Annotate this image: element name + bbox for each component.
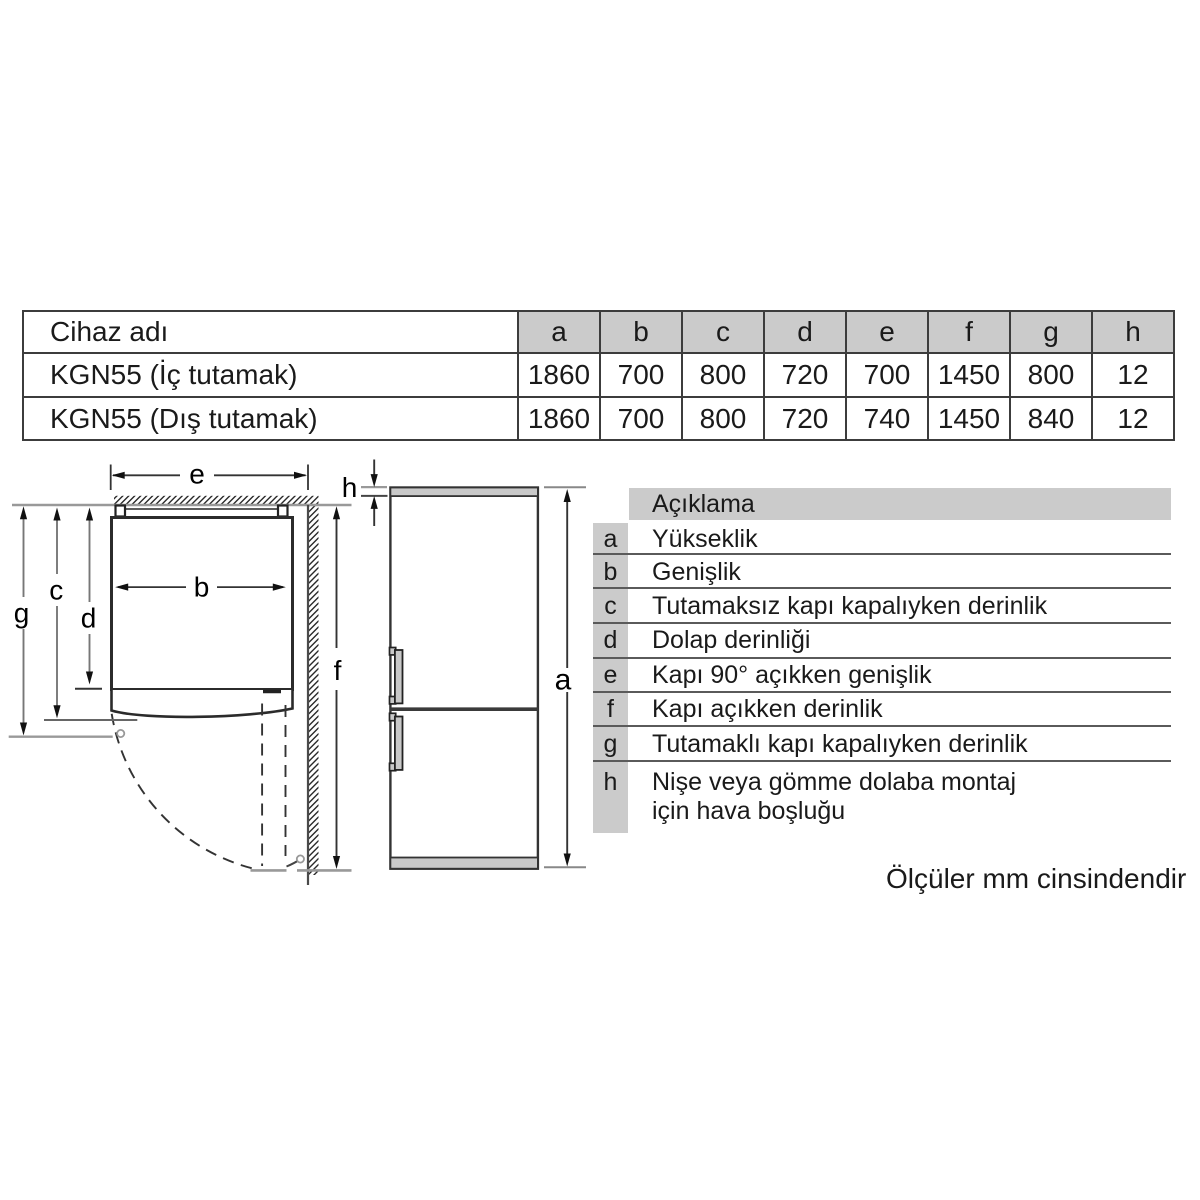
svg-text:d: d <box>81 603 97 634</box>
svg-text:a: a <box>555 664 572 697</box>
svg-text:f: f <box>334 655 342 686</box>
svg-text:c: c <box>49 575 63 606</box>
svg-text:b: b <box>194 572 210 603</box>
svg-text:h: h <box>342 472 358 503</box>
svg-text:e: e <box>189 459 205 490</box>
svg-text:g: g <box>14 598 30 629</box>
